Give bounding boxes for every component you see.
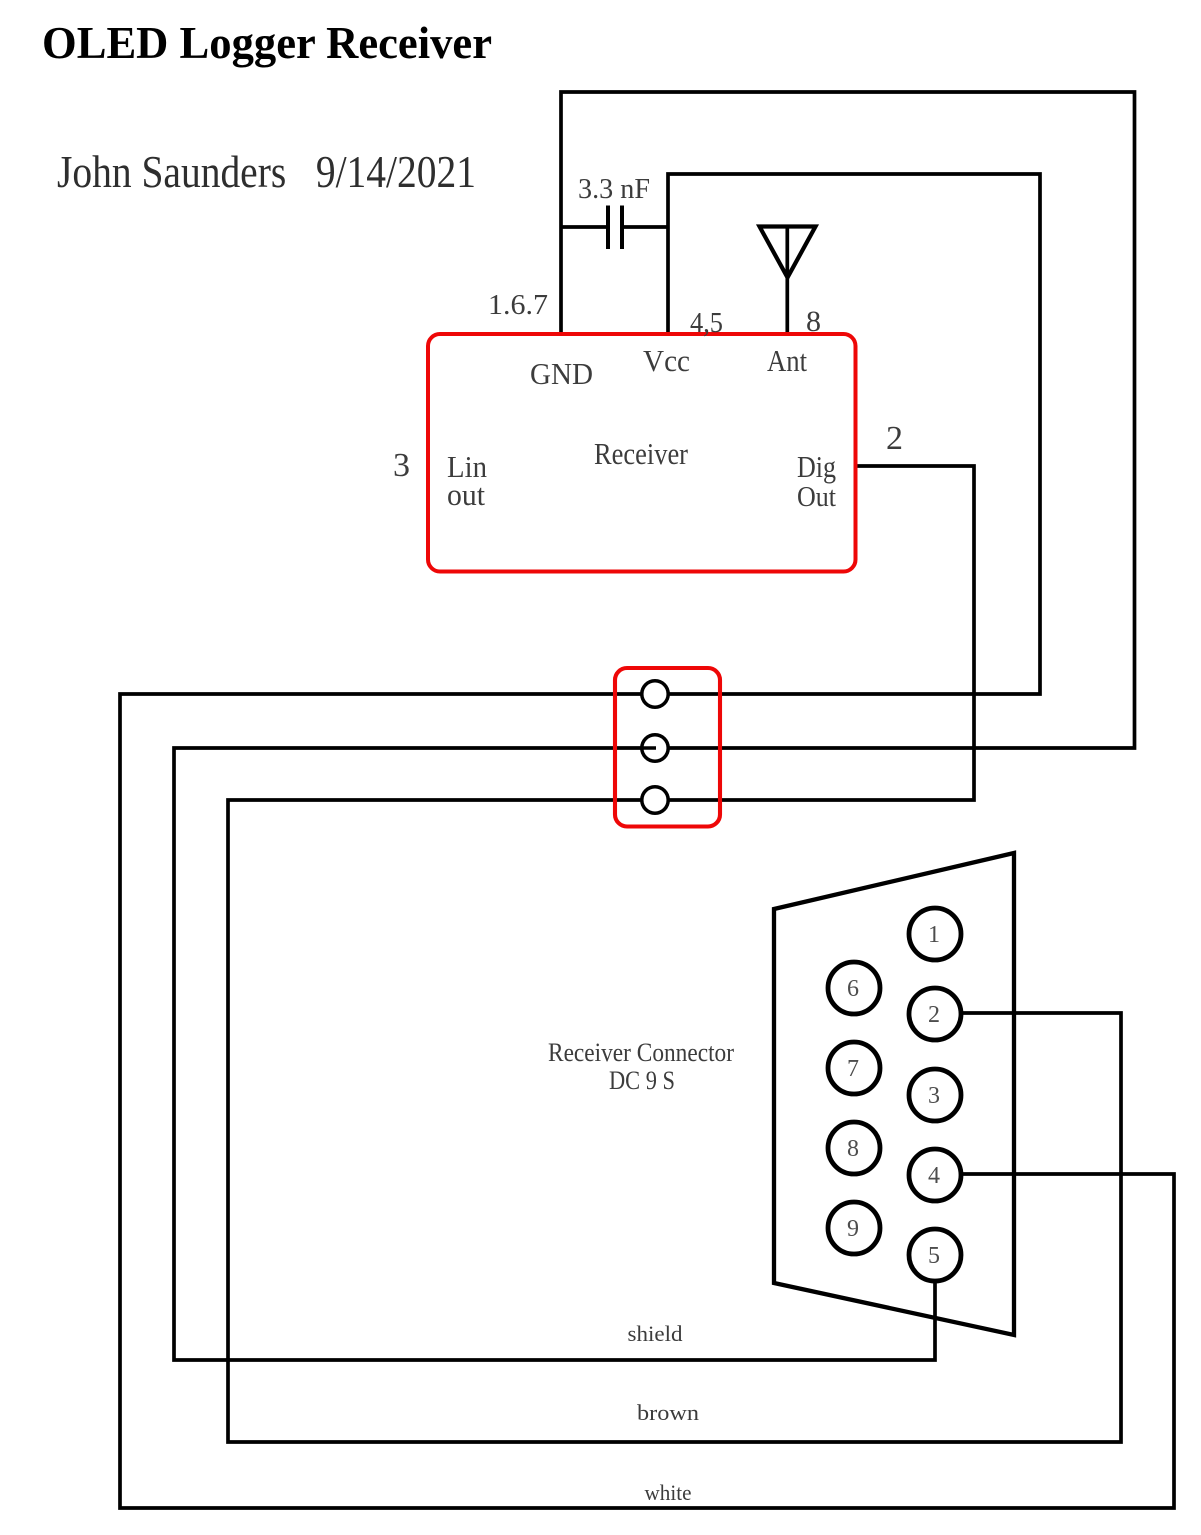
svg-text:brown: brown (637, 1400, 699, 1425)
svg-text:Vcc: Vcc (643, 343, 690, 378)
svg-text:Dig: Dig (797, 449, 836, 484)
svg-text:4: 4 (928, 1163, 940, 1189)
svg-text:2: 2 (928, 1002, 940, 1028)
svg-text:1: 1 (928, 922, 940, 948)
svg-text:DC 9 S: DC 9 S (609, 1066, 675, 1095)
svg-text:5: 5 (928, 1243, 940, 1269)
svg-text:3: 3 (928, 1083, 940, 1109)
svg-text:out: out (447, 477, 485, 512)
svg-text:Out: Out (797, 481, 836, 513)
svg-text:OLED Logger Receiver: OLED Logger Receiver (42, 18, 492, 68)
svg-text:4,5: 4,5 (690, 307, 723, 339)
svg-text:2: 2 (886, 420, 903, 457)
svg-text:Ant: Ant (767, 343, 807, 378)
svg-text:3.3 nF: 3.3 nF (578, 173, 650, 205)
svg-text:John Saunders 9/14/2021: John Saunders 9/14/2021 (57, 146, 476, 197)
svg-text:9: 9 (847, 1216, 859, 1242)
svg-text:1.6.7: 1.6.7 (488, 290, 548, 321)
svg-text:Receiver Connector: Receiver Connector (548, 1038, 734, 1067)
svg-text:6: 6 (847, 976, 859, 1002)
svg-text:8: 8 (806, 305, 821, 338)
svg-text:white: white (645, 1480, 692, 1505)
svg-text:8: 8 (847, 1136, 859, 1162)
svg-text:Receiver: Receiver (594, 436, 689, 471)
svg-text:7: 7 (847, 1056, 859, 1082)
svg-text:shield: shield (628, 1321, 683, 1346)
svg-text:3: 3 (393, 447, 410, 484)
svg-text:GND: GND (530, 356, 593, 391)
